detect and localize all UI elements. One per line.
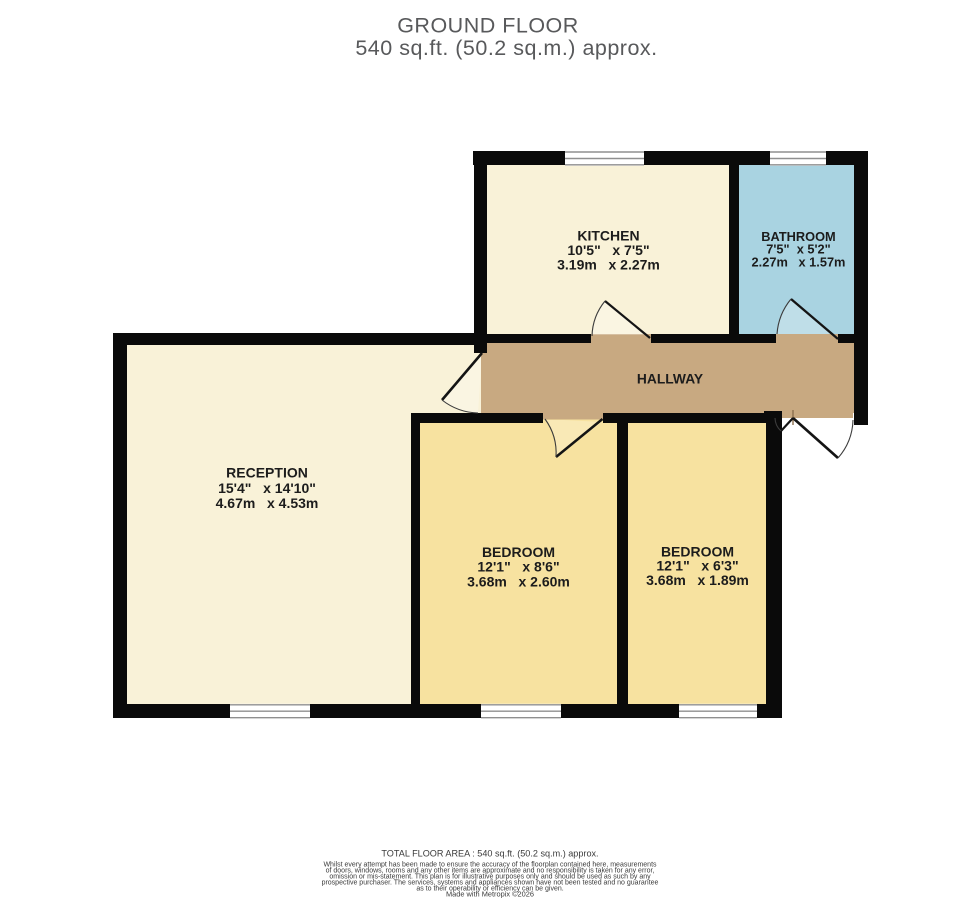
svg-text:TOTAL FLOOR AREA : 540 sq.ft.: TOTAL FLOOR AREA : 540 sq.ft. (50.2 sq.m… [381,849,598,859]
svg-text:12'1" x 6'3": 12'1" x 6'3" [656,557,738,573]
svg-text:15'4" x 14'10": 15'4" x 14'10" [218,480,316,496]
svg-text:3.19m x 2.27m: 3.19m x 2.27m [557,257,660,273]
svg-text:Made with Metropix ©2026: Made with Metropix ©2026 [446,890,534,899]
svg-text:2.27m x 1.57m: 2.27m x 1.57m [752,254,846,269]
svg-text:3.68m x 2.60m: 3.68m x 2.60m [467,573,570,589]
svg-text:540 sq.ft. (50.2 sq.m.) approx: 540 sq.ft. (50.2 sq.m.) approx. [355,36,657,60]
svg-text:GROUND FLOOR: GROUND FLOOR [397,14,579,38]
svg-text:HALLWAY: HALLWAY [637,372,703,387]
svg-text:12'1" x 8'6": 12'1" x 8'6" [477,558,559,574]
svg-text:3.68m x 1.89m: 3.68m x 1.89m [646,572,749,588]
svg-text:4.67m x 4.53m: 4.67m x 4.53m [216,495,319,511]
svg-text:RECEPTION: RECEPTION [226,465,308,481]
